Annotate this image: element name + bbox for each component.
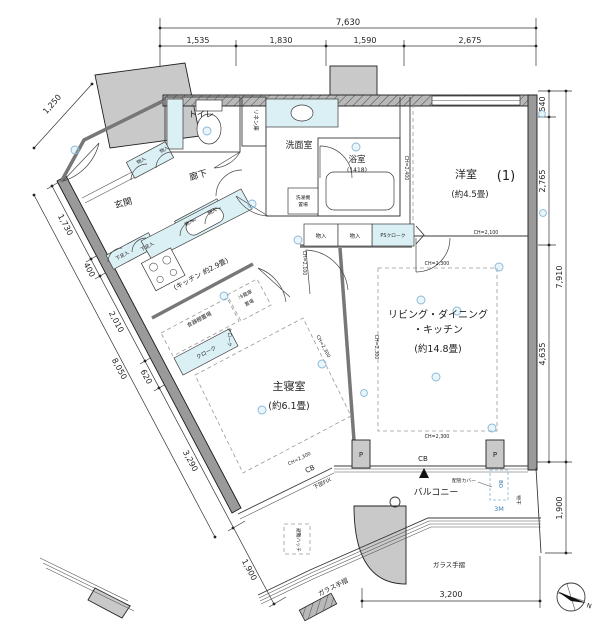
label-ldk-1: リビング・ダイニング xyxy=(388,308,488,321)
label-ch2100-a: CH=2,100 xyxy=(474,230,499,236)
dim-right-540: 540 xyxy=(538,96,547,111)
bathtub xyxy=(326,172,394,210)
label-western-room: 洋室 xyxy=(455,167,477,181)
toilet-cabinet xyxy=(167,99,183,149)
label-ps-cloak: PSクローク xyxy=(380,233,405,239)
dim-left-620: 620 xyxy=(139,368,154,386)
label-hatch: 避難ハッチ xyxy=(295,528,302,552)
label-ch2300-a: CH=2,300 xyxy=(425,261,450,267)
planter-handle xyxy=(390,497,400,507)
dim-left-1250: 1,250 xyxy=(41,93,63,116)
bottom-hatch-block xyxy=(299,593,336,620)
dimension-top: 7,630 1,535 1,830 1,590 2,675 xyxy=(159,18,538,66)
dim-right-7910: 7,910 xyxy=(555,266,564,289)
label-lower-fix: 下部FIX xyxy=(312,475,333,491)
label-bath: 浴室 xyxy=(348,154,366,165)
basin xyxy=(291,105,313,121)
dim-top-2: 1,830 xyxy=(270,36,293,45)
label-storage-6: 物入 xyxy=(350,232,361,240)
right-wall xyxy=(528,95,537,470)
label-ldk-size: (約14.8畳) xyxy=(414,343,462,355)
label-western-no: (1) xyxy=(497,169,515,184)
label-drying: 物干 xyxy=(515,495,522,505)
dim-top-total: 7,630 xyxy=(336,18,360,28)
windows xyxy=(238,96,528,519)
dim-left-2010: 2,010 xyxy=(107,310,126,334)
label-toilet: トイレ xyxy=(188,110,214,120)
dim-top-1: 1,535 xyxy=(187,36,210,45)
floor-plan-svg: 7,630 1,535 1,830 1,590 2,675 540 2,765 … xyxy=(0,0,612,640)
label-ch2300-b: CH=2,300 xyxy=(425,434,450,440)
label-fridge-2: 置場 xyxy=(243,297,255,308)
label-linen: リネン庫 xyxy=(252,109,260,131)
label-hallway: 廊下 xyxy=(188,167,209,183)
label-cloak-2: クローク xyxy=(226,327,232,346)
label-glass-rail-2: ガラス手摺 xyxy=(316,575,349,597)
balcony-right-edge xyxy=(536,468,541,553)
label-dish-shelf: 食器棚置場 xyxy=(185,309,213,329)
bedroom-window xyxy=(238,468,332,514)
dim-top-4: 2,675 xyxy=(459,36,482,45)
label-pillar-2: P xyxy=(493,451,497,459)
washer-box xyxy=(288,188,318,214)
label-glass-rail-1: ガラス手摺 xyxy=(433,560,466,569)
label-storage-5: 物入 xyxy=(316,232,327,240)
label-3m: 3M xyxy=(494,505,504,513)
dim-left-400: 400 xyxy=(82,261,97,279)
label-bedroom: 主寝室 xyxy=(273,379,306,393)
fridge-area xyxy=(227,279,271,321)
north-needle xyxy=(557,591,586,603)
door-arcs xyxy=(63,143,450,302)
dim-left-1730: 1,730 xyxy=(56,213,75,237)
label-pipe-cover: 配管カバー xyxy=(452,477,476,484)
section-marker xyxy=(419,468,429,478)
compass: N xyxy=(557,583,593,611)
dim-top-3: 1,590 xyxy=(354,36,377,45)
balcony-planter xyxy=(354,506,406,584)
label-entrance: 玄関 xyxy=(113,195,134,211)
label-ch2400: CH=2,400 xyxy=(403,156,409,181)
label-balcony: バルコニー xyxy=(414,487,459,498)
label-bedroom-size: (約6.1畳) xyxy=(268,400,310,412)
label-laundry-1: 洗濯機 xyxy=(296,194,311,201)
label-western-size: (約4.5畳) xyxy=(451,189,488,200)
label-ldk-2: ・キッチン xyxy=(413,324,463,336)
label-bo: BO xyxy=(497,480,503,488)
room-labels: トイレ リネン庫 洗面室 浴室 (1418) 洗濯機 置場 洋室 (1) (約4… xyxy=(113,109,515,498)
entry-step xyxy=(82,170,136,198)
dim-right-2765: 2,765 xyxy=(538,170,547,193)
balcony-railing xyxy=(40,468,541,611)
folding-door xyxy=(416,226,424,244)
floor-plan: 7,630 1,535 1,830 1,590 2,675 540 2,765 … xyxy=(0,0,612,640)
lower-left-mass xyxy=(88,588,130,618)
dim-left-3290: 3,290 xyxy=(181,449,200,473)
dim-right-1900: 1,900 xyxy=(555,497,564,520)
dim-right-4635: 4,635 xyxy=(538,343,547,366)
label-ch2100-b: CH=2,100 xyxy=(301,251,307,276)
top-center-mass xyxy=(330,66,377,99)
dim-bottom-3200: 3,200 xyxy=(440,590,463,599)
label-pillar-1: P xyxy=(359,451,363,459)
label-ch2300-c: CH=2,300 xyxy=(373,335,379,360)
label-washroom: 洗面室 xyxy=(285,139,312,151)
label-ch2300-d: CH=2,300 xyxy=(314,334,331,359)
label-cb-2: CB xyxy=(304,463,316,475)
ldk-left-wall xyxy=(340,248,356,468)
label-laundry-2: 置場 xyxy=(298,201,308,208)
label-cb-1: CB xyxy=(418,455,428,463)
north-label: N xyxy=(586,601,593,610)
label-bath-size: (1418) xyxy=(347,167,367,174)
dimension-right: 540 2,765 7,910 4,635 1,900 xyxy=(532,90,572,555)
